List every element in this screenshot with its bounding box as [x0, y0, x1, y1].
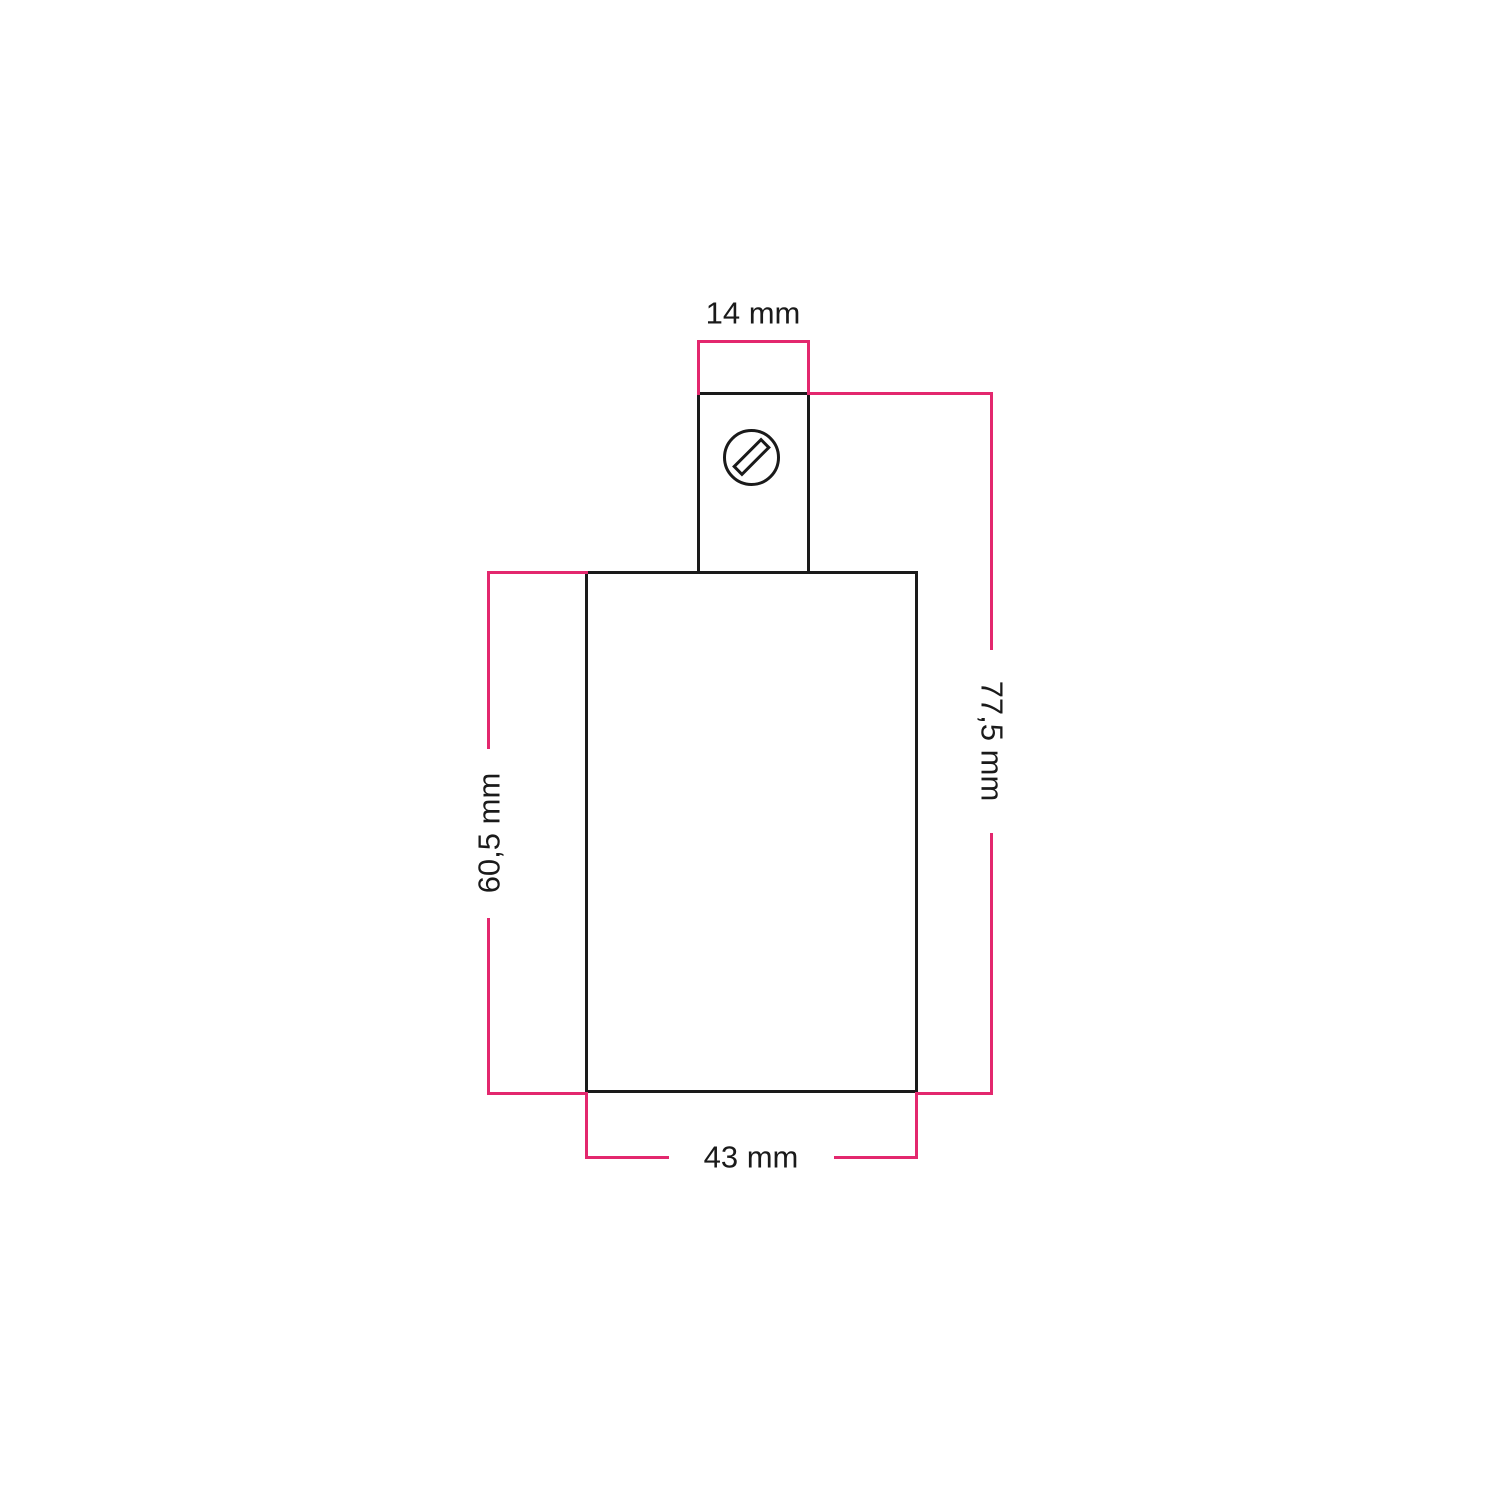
dim-label-clamp-width: 14 mm	[706, 298, 801, 329]
dim-label-total-height: 77,5 mm	[977, 681, 1008, 802]
dim-line-body-height-upper	[487, 571, 490, 749]
dim-label-body-height: 60,5 mm	[474, 773, 505, 894]
dim-line-body-height-top-tick	[487, 571, 588, 574]
dim-line-total-height-upper	[990, 392, 993, 650]
dim-line-body-width-right	[915, 1092, 918, 1159]
dim-label-body-width: 43 mm	[704, 1142, 799, 1173]
dim-line-total-height-bottom-tick	[918, 1092, 993, 1095]
dim-line-clamp-width-left	[697, 340, 700, 395]
lamp-holder-body-outline	[585, 571, 918, 1093]
technical-drawing-canvas: 14 mm 77,5 mm 60,5 mm 43 mm	[0, 0, 1500, 1500]
dim-line-body-width-bottom-right	[834, 1156, 918, 1159]
dim-line-body-width-left	[585, 1092, 588, 1159]
dim-line-body-height-lower	[487, 918, 490, 1095]
dim-line-body-height-bottom-tick	[487, 1092, 588, 1095]
dim-line-total-height-top	[807, 392, 993, 395]
dim-line-body-width-bottom-left	[585, 1156, 669, 1159]
dim-line-total-height-lower	[990, 833, 993, 1095]
dim-line-clamp-width-top	[697, 340, 810, 343]
dim-line-clamp-width-right	[807, 340, 810, 395]
